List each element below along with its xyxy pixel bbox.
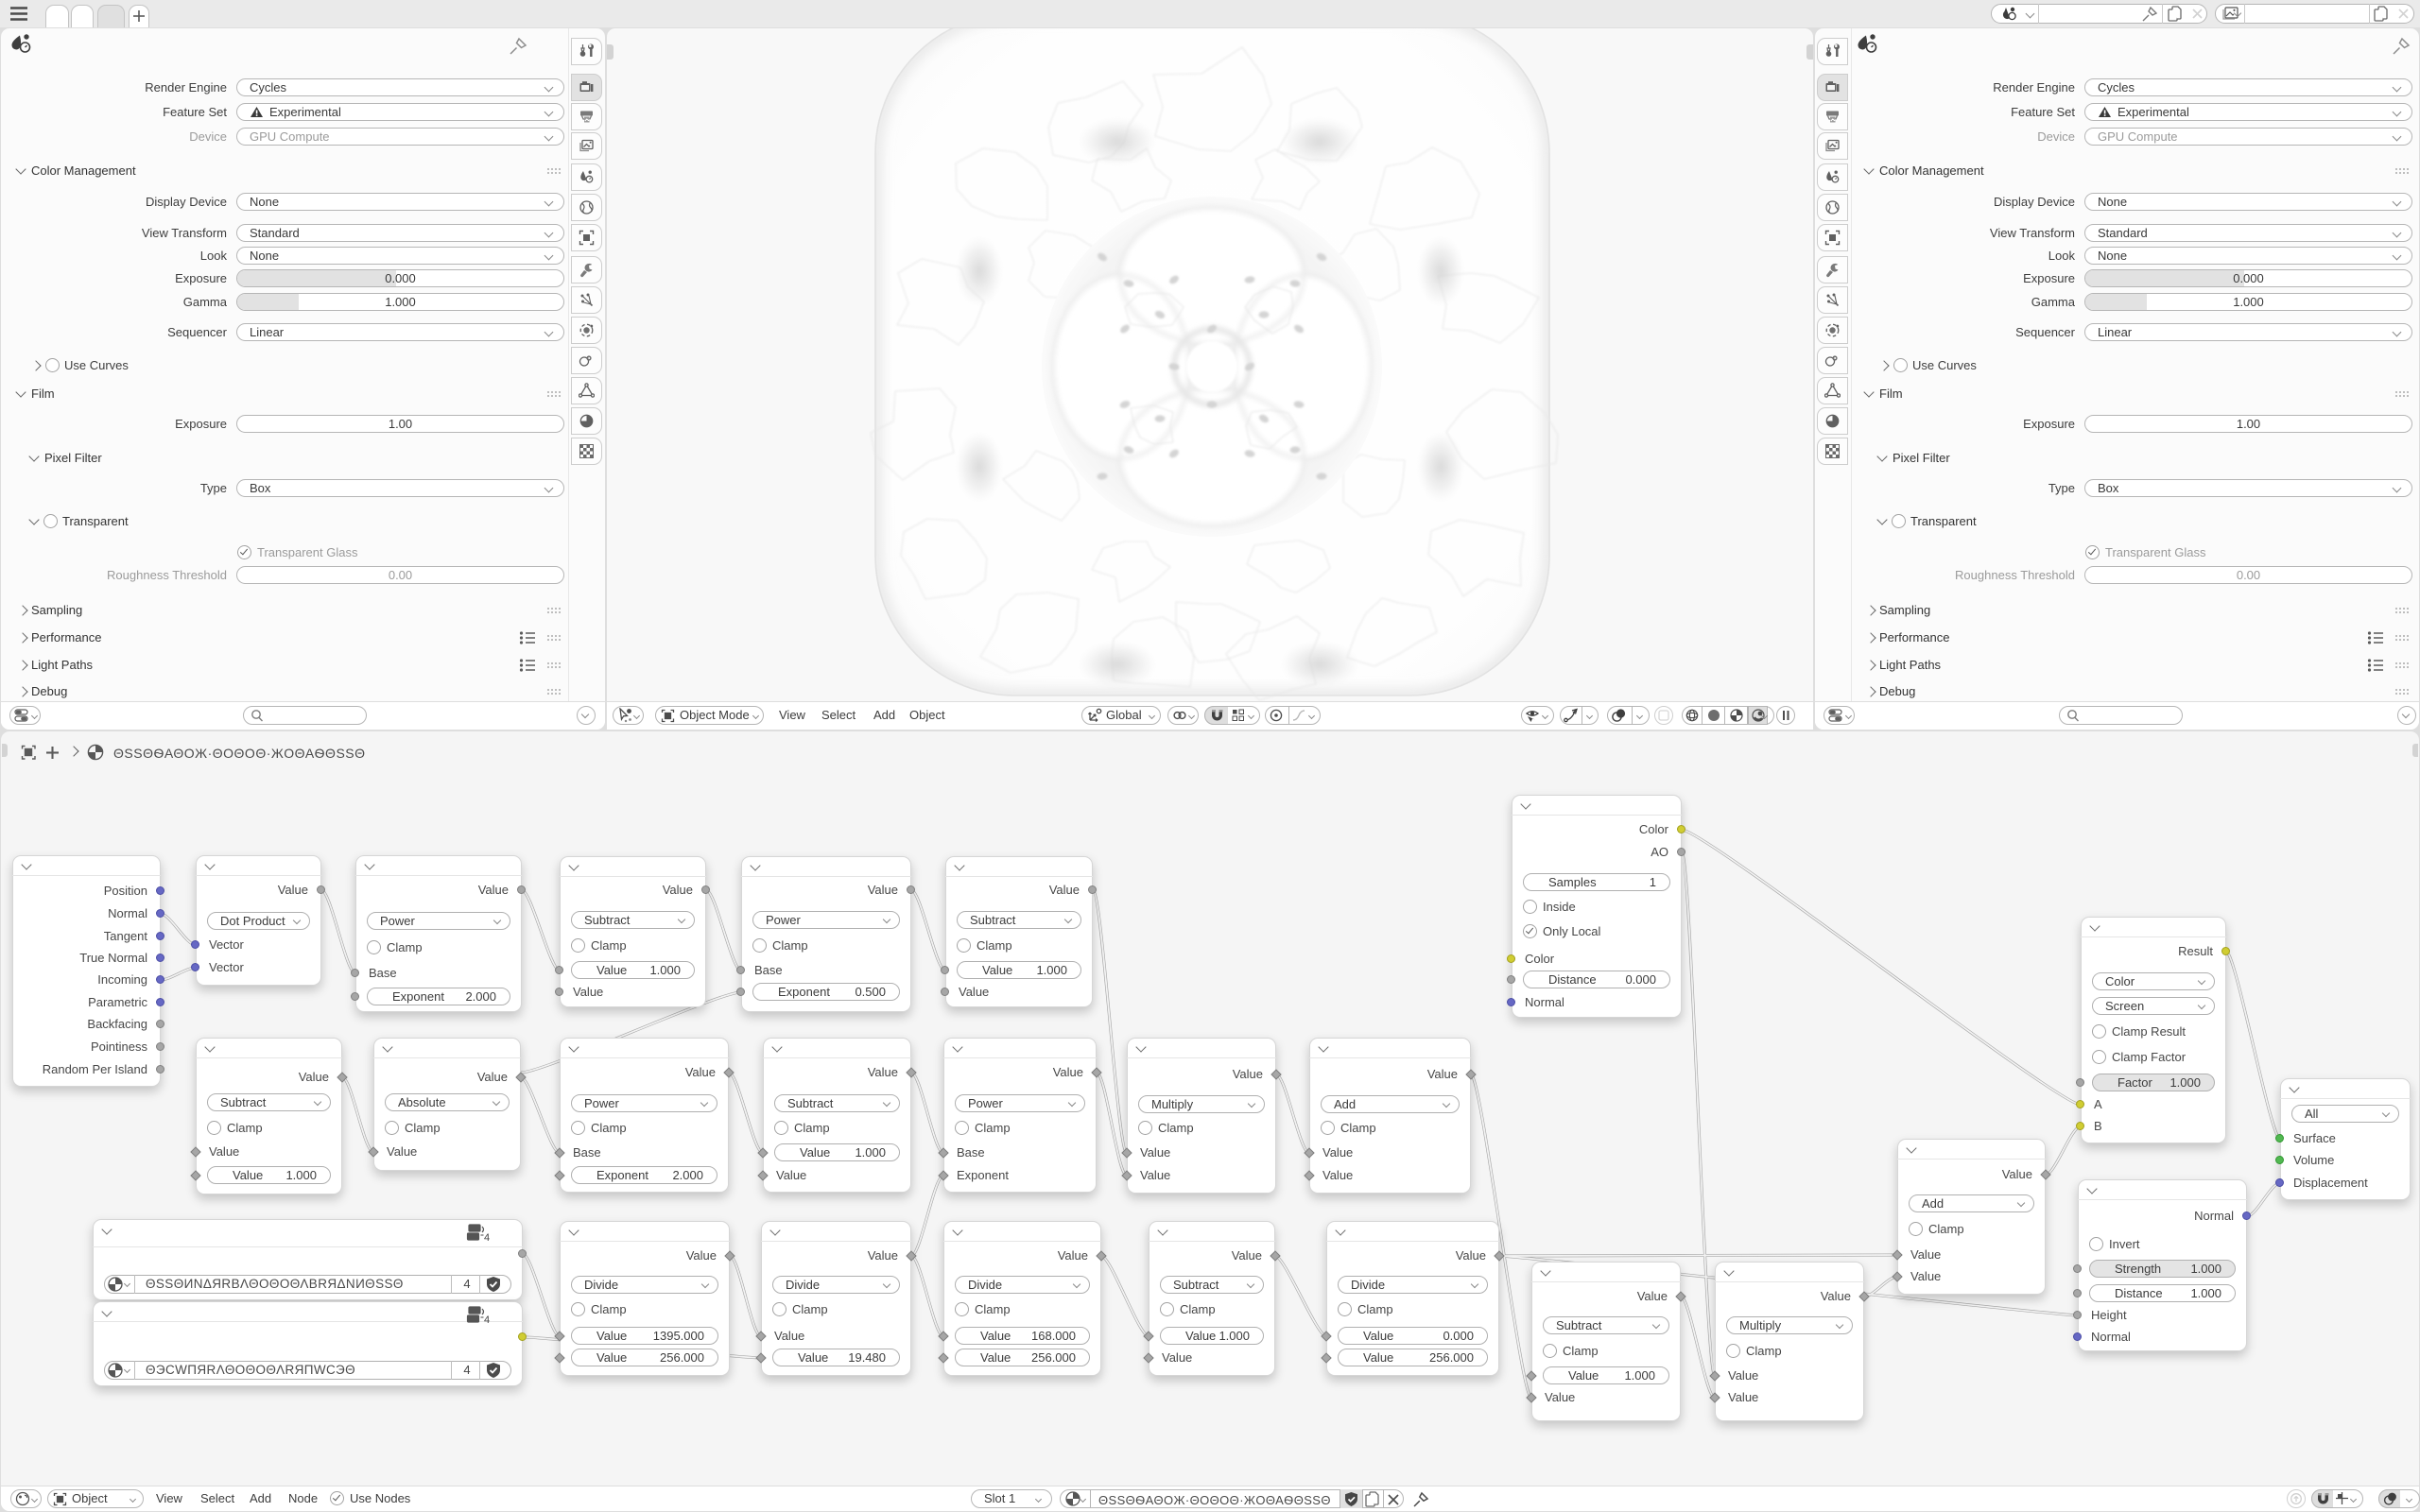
svg-text:4: 4	[484, 1314, 490, 1326]
svg-text:4: 4	[484, 1232, 490, 1244]
